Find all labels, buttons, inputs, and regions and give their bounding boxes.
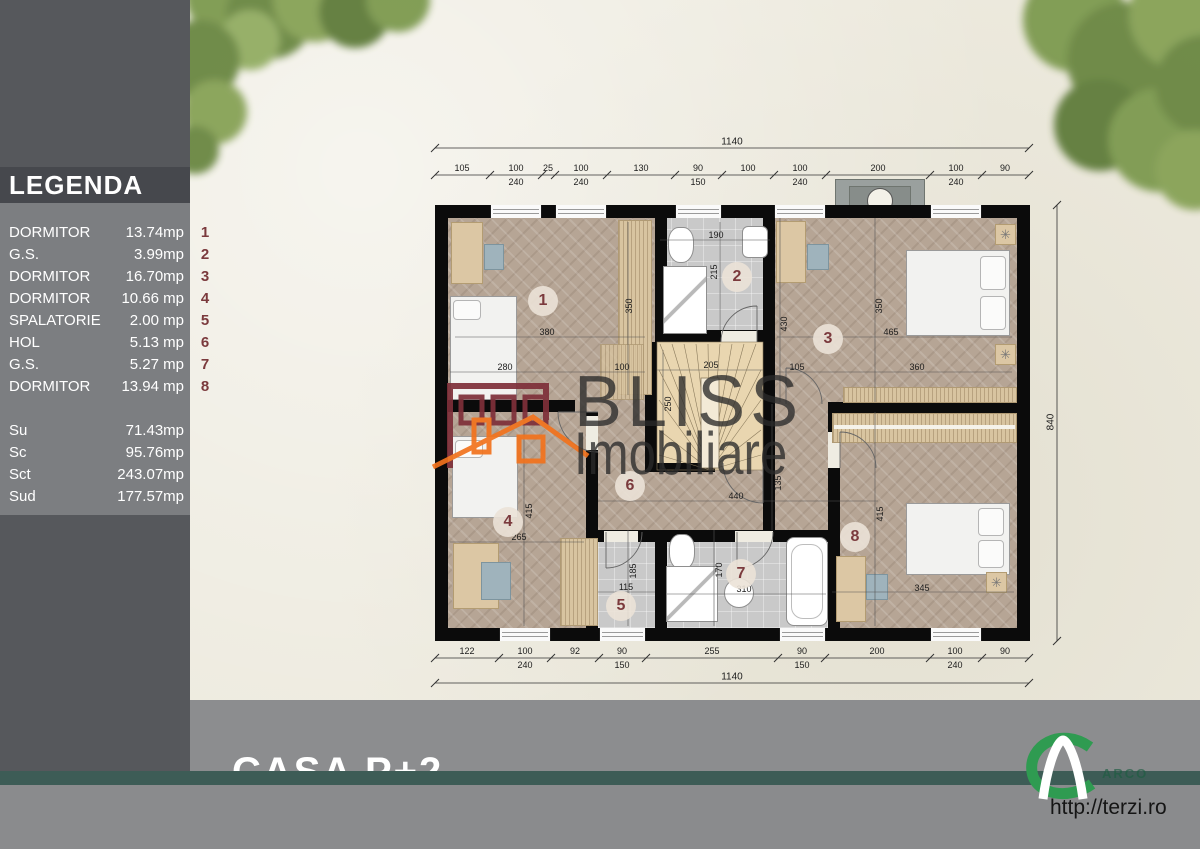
pillow <box>978 508 1004 536</box>
chair <box>866 574 888 600</box>
legend-row: SPALATORIE 2.00 mp <box>9 310 184 332</box>
desk <box>776 221 806 283</box>
dim-label: 350 <box>874 298 884 313</box>
legend-room-name: G.S. <box>9 354 39 376</box>
dim-chain-label: 90 <box>1000 647 1010 656</box>
window <box>774 205 826 218</box>
pillow <box>455 440 483 458</box>
room-number-badge: 1 <box>528 286 558 316</box>
desk <box>836 556 866 622</box>
dim-chain-label: 100240 <box>947 647 962 670</box>
ceiling-fan-icon: ✳ <box>995 344 1016 365</box>
room-number-badge: 8 <box>840 522 870 552</box>
door-gap-r5 <box>604 531 638 542</box>
legend-total-name: Su <box>9 420 27 442</box>
legend-number-column: 12345678 <box>196 222 214 398</box>
bathtub <box>786 537 828 626</box>
toilet <box>669 534 695 570</box>
legend-row: G.S. 5.27 mp <box>9 354 184 376</box>
dim-chain-label: 200 <box>870 164 885 173</box>
door-gap-r2 <box>721 331 757 342</box>
watermark-line2: Imobiliare <box>574 424 787 484</box>
legend-room-name: DORMITOR <box>9 376 90 398</box>
wall-r3-r8 <box>828 402 1017 413</box>
dim-label: 190 <box>708 230 723 240</box>
legend-row: HOL 5.13 mp <box>9 332 184 354</box>
desk <box>451 222 483 284</box>
chair <box>481 562 511 600</box>
wardrobe <box>560 538 598 626</box>
website-url[interactable]: http://terzi.ro <box>1050 796 1167 820</box>
legend-room-name: DORMITOR <box>9 288 90 310</box>
legend-body: DORMITOR 13.74mp G.S. 3.99mp DORMITOR 16… <box>0 203 190 515</box>
room-number-badge: 5 <box>606 591 636 621</box>
dim-label: 430 <box>779 316 789 331</box>
window <box>930 205 982 218</box>
dim-label: 170 <box>714 562 724 577</box>
pillow <box>978 540 1004 568</box>
legend-total-row: Sct 243.07mp <box>9 464 184 486</box>
legend-room-area: 2.00 mp <box>130 310 184 332</box>
legend-room-area: 13.74mp <box>126 222 184 244</box>
legend-total-name: Sct <box>9 464 31 486</box>
dim-chain-label: 100240 <box>573 164 588 187</box>
ceiling-fan-icon: ✳ <box>995 224 1016 245</box>
dim-label: 350 <box>624 298 634 313</box>
ceiling-fan-icon: ✳ <box>986 572 1007 593</box>
legend-row: DORMITOR 10.66 mp <box>9 288 184 310</box>
dim-label: 345 <box>914 583 929 593</box>
legend-row: G.S. 3.99mp <box>9 244 184 266</box>
dim-label: 380 <box>539 327 554 337</box>
dim-chain-label: 100240 <box>948 164 963 187</box>
legend-total-value: 71.43mp <box>126 420 184 442</box>
legend-totals: Su 71.43mp Sc 95.76mp Sct 243.07mp Sud 1… <box>9 420 184 508</box>
dim-chain-label: 90150 <box>690 164 705 187</box>
legend-room-area: 10.66 mp <box>121 288 184 310</box>
arco-logo-text: ARCO <box>1102 766 1148 781</box>
overall-width-dim: 1140 <box>721 137 743 148</box>
dim-chain-label: 100240 <box>508 164 523 187</box>
legend-room-name: DORMITOR <box>9 266 90 288</box>
toilet <box>668 227 694 263</box>
legend-room-area: 5.13 mp <box>130 332 184 354</box>
dim-chain-label: 100240 <box>517 647 532 670</box>
pillow <box>453 300 481 320</box>
dim-label: 415 <box>524 503 534 518</box>
window <box>779 628 826 641</box>
wardrobe-shelf <box>834 425 1015 429</box>
legend-room-number: 8 <box>196 376 214 398</box>
legend-row: DORMITOR 16.70mp <box>9 266 184 288</box>
legend-room-name: G.S. <box>9 244 39 266</box>
legend-row: DORMITOR 13.94 mp <box>9 376 184 398</box>
pillow <box>980 296 1006 330</box>
window <box>599 628 646 641</box>
legend-total-row: Sc 95.76mp <box>9 442 184 464</box>
legend-room-area: 3.99mp <box>134 244 184 266</box>
legend-row: DORMITOR 13.74mp <box>9 222 184 244</box>
sink <box>742 226 768 258</box>
window <box>930 628 982 641</box>
legend-room-area: 16.70mp <box>126 266 184 288</box>
dim-chain-label: 100 <box>740 164 755 173</box>
window <box>675 205 722 218</box>
dim-label: 185 <box>628 563 638 578</box>
legend-total-row: Su 71.43mp <box>9 420 184 442</box>
chair <box>484 244 504 270</box>
legend-total-row: Sud 177.57mp <box>9 486 184 508</box>
floor-plan-page: ✳ ✳ ✳ <box>0 0 1200 849</box>
dim-chain-label: 92 <box>570 647 580 656</box>
dim-chain-label: 200 <box>869 647 884 656</box>
legend-total-value: 177.57mp <box>117 486 184 508</box>
dim-chain-label: 90150 <box>614 647 629 670</box>
dim-chain-label: 100240 <box>792 164 807 187</box>
legend-total-name: Sc <box>9 442 27 464</box>
window <box>555 205 607 218</box>
dim-chain-label: 122 <box>459 647 474 656</box>
overall-height-dim: 840 <box>1046 414 1057 431</box>
legend-rows: DORMITOR 13.74mp G.S. 3.99mp DORMITOR 16… <box>9 222 184 398</box>
teal-divider-band <box>0 771 1200 785</box>
tree-top-right <box>1023 0 1200 210</box>
legend-room-name: DORMITOR <box>9 222 90 244</box>
footer-bottom-band <box>0 785 1200 849</box>
legend-title: LEGENDA <box>0 167 190 203</box>
legend-room-number: 3 <box>196 266 214 288</box>
dim-chain-label: 25 <box>543 164 553 173</box>
dim-chain-label: 90150 <box>794 647 809 670</box>
shower <box>666 566 718 622</box>
door-gap-r7 <box>735 531 773 542</box>
dim-chain-label: 105 <box>454 164 469 173</box>
room-number-badge: 4 <box>493 507 523 537</box>
legend-room-number: 2 <box>196 244 214 266</box>
legend-room-number: 1 <box>196 222 214 244</box>
legend-room-number: 6 <box>196 332 214 354</box>
shower <box>663 266 707 334</box>
pillow <box>980 256 1006 290</box>
legend-room-number: 5 <box>196 310 214 332</box>
overall-width-dim-bottom: 1140 <box>721 672 743 683</box>
wall-right <box>1017 205 1030 641</box>
legend-room-name: SPALATORIE <box>9 310 101 332</box>
dim-label: 280 <box>497 362 512 372</box>
legend-room-area: 13.94 mp <box>121 376 184 398</box>
dim-label: 360 <box>909 362 924 372</box>
legend-room-area: 5.27 mp <box>130 354 184 376</box>
wardrobe <box>843 387 1017 403</box>
room-number-badge: 7 <box>726 559 756 589</box>
window <box>490 205 542 218</box>
wall-left <box>435 205 448 641</box>
dim-label: 465 <box>883 327 898 337</box>
dim-chain-label: 90 <box>1000 164 1010 173</box>
chair <box>807 244 829 270</box>
dim-label: 415 <box>875 506 885 521</box>
legend-total-value: 95.76mp <box>126 442 184 464</box>
dim-chain-label: 255 <box>704 647 719 656</box>
window <box>499 628 551 641</box>
legend-total-name: Sud <box>9 486 36 508</box>
legend-total-value: 243.07mp <box>117 464 184 486</box>
wall-r1-r4 <box>448 400 575 412</box>
legend-room-name: HOL <box>9 332 40 354</box>
room-number-badge: 2 <box>722 262 752 292</box>
dim-label: 215 <box>709 264 719 279</box>
dim-label: 440 <box>728 491 743 501</box>
legend-room-number: 7 <box>196 354 214 376</box>
legend-room-number: 4 <box>196 288 214 310</box>
dim-chain-label: 130 <box>633 164 648 173</box>
room-number-badge: 3 <box>813 324 843 354</box>
